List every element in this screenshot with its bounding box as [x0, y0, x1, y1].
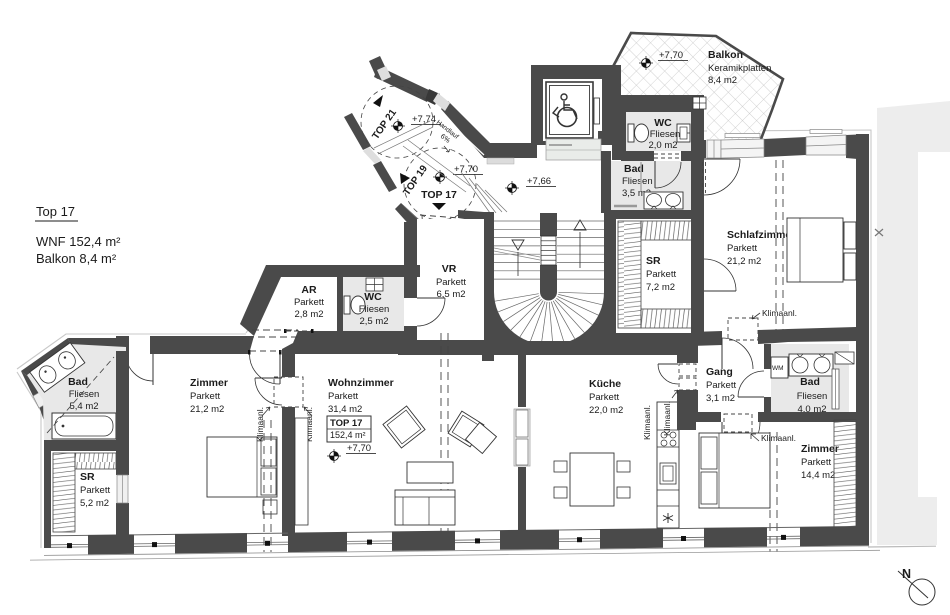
svg-text:Parkett: Parkett — [589, 392, 619, 403]
svg-text:Parkett: Parkett — [328, 391, 358, 402]
svg-text:Klimaanl.: Klimaanl. — [761, 433, 796, 443]
svg-text:7,2 m2: 7,2 m2 — [646, 282, 675, 293]
svg-text:N: N — [902, 567, 911, 581]
svg-text:Bad: Bad — [68, 376, 88, 388]
svg-text:VR: VR — [442, 263, 457, 275]
svg-text:Balkon: Balkon — [708, 49, 743, 61]
svg-text:2,0 m2: 2,0 m2 — [648, 140, 677, 151]
svg-text:Fliesen: Fliesen — [69, 389, 100, 400]
svg-text:+7,70: +7,70 — [659, 50, 683, 61]
svg-text:Parkett: Parkett — [190, 391, 220, 402]
svg-text:8,4 m2: 8,4 m2 — [708, 75, 737, 86]
svg-text:Fliesen: Fliesen — [622, 176, 653, 187]
svg-text:Fliesen: Fliesen — [359, 304, 390, 315]
svg-text:Parkett: Parkett — [706, 380, 736, 391]
svg-text:Klimaanl.: Klimaanl. — [255, 407, 265, 442]
svg-text:21,2 m2: 21,2 m2 — [727, 256, 761, 267]
svg-text:Top 17: Top 17 — [36, 204, 75, 219]
svg-text:Bad: Bad — [800, 376, 820, 388]
svg-text:Zimmer: Zimmer — [190, 377, 228, 389]
svg-text:Klimaanl.: Klimaanl. — [642, 405, 652, 440]
svg-text:Parkett: Parkett — [801, 457, 831, 468]
svg-text:31,4 m2: 31,4 m2 — [328, 404, 362, 415]
svg-text:22,0 m2: 22,0 m2 — [589, 405, 623, 416]
svg-text:Klimaanl.: Klimaanl. — [662, 401, 672, 436]
svg-text:+7,74: +7,74 — [412, 114, 436, 125]
svg-text:Schlafzimmer: Schlafzimmer — [727, 229, 795, 241]
svg-text:Parkett: Parkett — [80, 485, 110, 496]
svg-text:+7,66: +7,66 — [527, 176, 551, 187]
svg-text:14,4 m2: 14,4 m2 — [801, 470, 835, 481]
svg-text:152,4 m²: 152,4 m² — [330, 430, 366, 440]
svg-text:Keramikplatten: Keramikplatten — [708, 63, 771, 74]
svg-text:+7,70: +7,70 — [454, 164, 478, 175]
svg-text:SR: SR — [646, 255, 661, 267]
svg-text:5,2 m2: 5,2 m2 — [80, 498, 109, 509]
svg-text:2,5 m2: 2,5 m2 — [359, 316, 388, 327]
svg-text:Parkett: Parkett — [727, 243, 757, 254]
svg-text:WC: WC — [654, 117, 672, 129]
svg-text:Zimmer: Zimmer — [801, 443, 839, 455]
svg-text:Fliesen: Fliesen — [650, 129, 681, 140]
svg-text:Parkett: Parkett — [646, 269, 676, 280]
svg-text:Parkett: Parkett — [294, 297, 324, 308]
svg-text:TOP 17: TOP 17 — [330, 418, 362, 429]
svg-text:Parkett: Parkett — [436, 277, 466, 288]
svg-text:SR: SR — [80, 471, 95, 483]
svg-text:WM: WM — [772, 365, 784, 372]
svg-text:WC: WC — [364, 291, 382, 303]
svg-text:Wohnzimmer: Wohnzimmer — [328, 377, 394, 389]
svg-text:WNF 152,4 m²: WNF 152,4 m² — [36, 234, 121, 249]
svg-text:Gang: Gang — [706, 366, 733, 378]
svg-text:21,2 m2: 21,2 m2 — [190, 404, 224, 415]
svg-text:AR: AR — [301, 284, 317, 296]
svg-text:3,1 m2: 3,1 m2 — [706, 393, 735, 404]
svg-text:Fliesen: Fliesen — [797, 391, 828, 402]
svg-text:+7,70: +7,70 — [347, 443, 371, 454]
svg-text:Balkon 8,4 m²: Balkon 8,4 m² — [36, 251, 117, 266]
svg-text:Klimaanl.: Klimaanl. — [762, 308, 797, 318]
svg-text:2,8 m2: 2,8 m2 — [294, 309, 323, 320]
svg-text:TOP 17: TOP 17 — [421, 189, 457, 201]
svg-text:Küche: Küche — [589, 378, 621, 390]
